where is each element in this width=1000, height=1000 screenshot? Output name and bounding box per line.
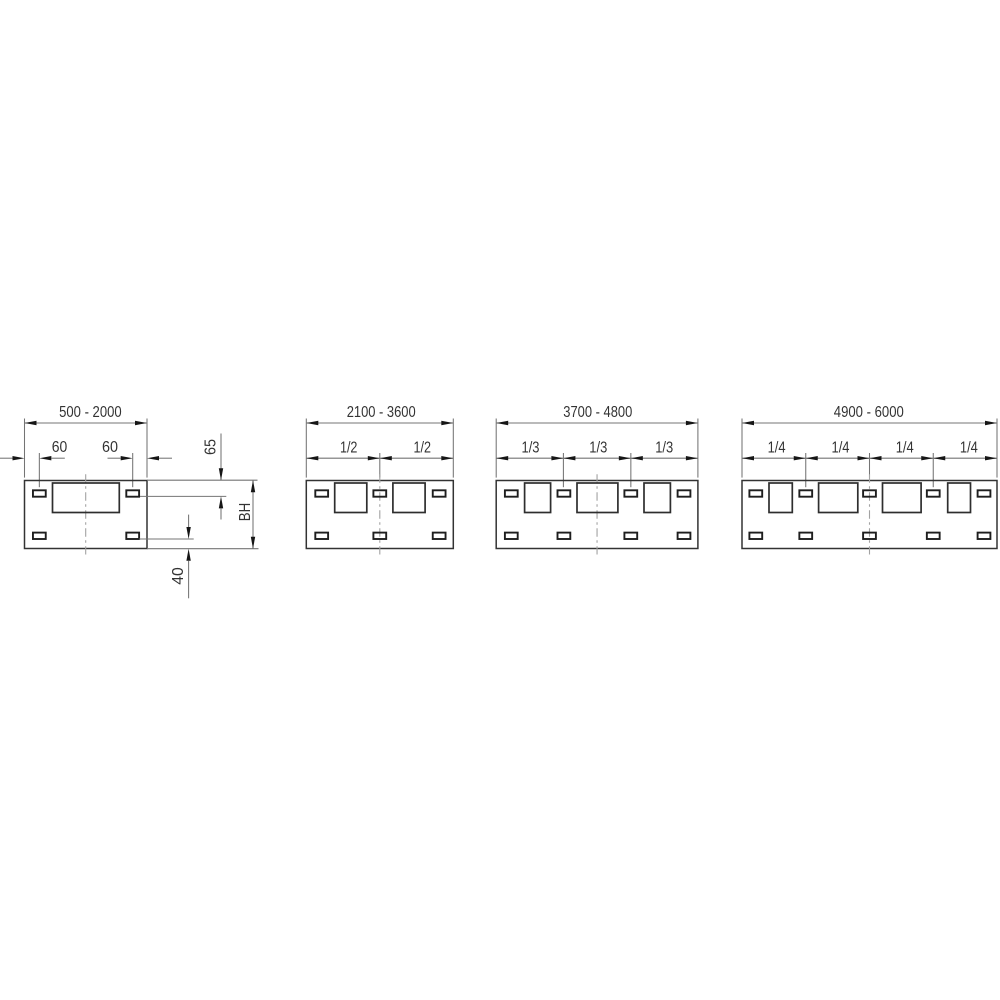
svg-text:4900 - 6000: 4900 - 6000 bbox=[834, 404, 904, 421]
svg-text:40: 40 bbox=[170, 567, 187, 585]
svg-text:60: 60 bbox=[102, 439, 118, 456]
svg-text:1/4: 1/4 bbox=[832, 440, 850, 457]
svg-text:500 - 2000: 500 - 2000 bbox=[59, 404, 122, 421]
svg-text:1/4: 1/4 bbox=[896, 440, 914, 457]
svg-text:1/2: 1/2 bbox=[340, 440, 358, 457]
svg-text:3700 - 4800: 3700 - 4800 bbox=[563, 404, 632, 421]
svg-text:60: 60 bbox=[52, 439, 68, 456]
svg-text:1/2: 1/2 bbox=[414, 440, 432, 457]
svg-text:1/3: 1/3 bbox=[589, 440, 607, 457]
svg-text:1/3: 1/3 bbox=[655, 440, 673, 457]
svg-text:2100 - 3600: 2100 - 3600 bbox=[347, 404, 416, 421]
svg-text:1/4: 1/4 bbox=[768, 440, 786, 457]
svg-text:BH: BH bbox=[237, 503, 254, 521]
svg-text:1/3: 1/3 bbox=[522, 440, 540, 457]
svg-text:1/4: 1/4 bbox=[960, 440, 978, 457]
svg-text:65: 65 bbox=[203, 439, 220, 455]
